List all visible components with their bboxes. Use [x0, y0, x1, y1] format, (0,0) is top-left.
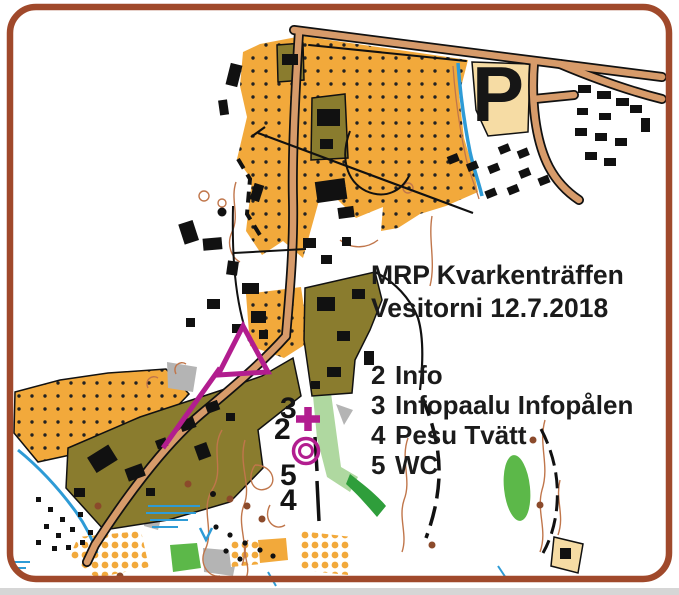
legend-label: Info [395, 360, 443, 390]
legend-label: Pesu Tvätt [395, 420, 527, 450]
event-title-line1: MRP Kvarkenträffen [371, 259, 624, 292]
legend-item-infopole: 3Infopaalu Infopålen [371, 390, 633, 420]
legend-number: 4 [371, 420, 395, 450]
event-title: MRP Kvarkenträffen Vesitorni 12.7.2018 [371, 259, 624, 325]
legend-number: 3 [371, 390, 395, 420]
bottom-gray-strip [0, 588, 679, 595]
legend: 2Info 3Infopaalu Infopålen 4Pesu Tvätt 5… [371, 360, 633, 480]
legend-label: WC [395, 450, 438, 480]
event-title-line2: Vesitorni 12.7.2018 [371, 292, 624, 325]
control-label-2: 2 [274, 417, 291, 443]
legend-number: 2 [371, 360, 395, 390]
legend-item-wash: 4Pesu Tvätt [371, 420, 633, 450]
legend-label: Infopaalu Infopålen [395, 390, 633, 420]
event-map-flyer: P 3 2 5 4 MRP Kvarkenträffen Vesitorni 1… [0, 0, 679, 595]
legend-item-info: 2Info [371, 360, 633, 390]
legend-number: 5 [371, 450, 395, 480]
parking-symbol-label: P [472, 55, 524, 133]
legend-item-wc: 5WC [371, 450, 633, 480]
control-label-4: 4 [280, 488, 297, 514]
